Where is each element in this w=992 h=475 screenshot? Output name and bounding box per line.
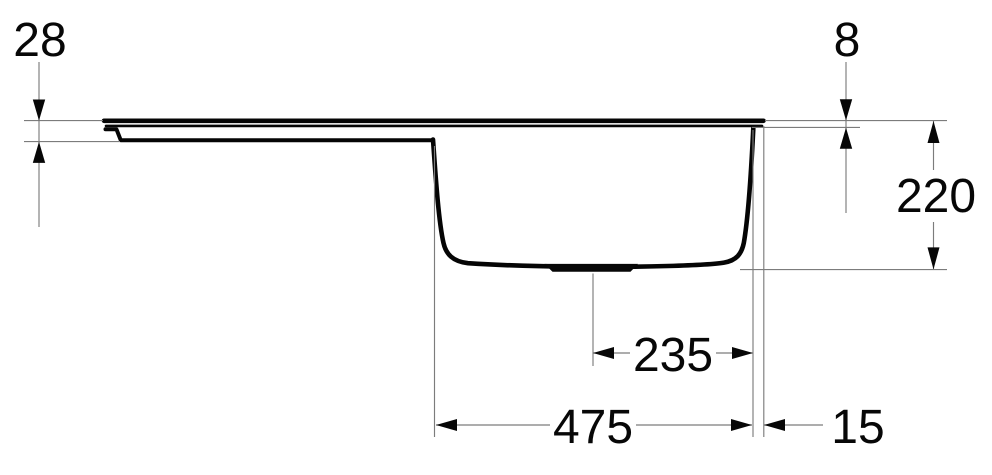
dimension-label: 15 (831, 401, 884, 454)
drawing-canvas: 28 8 220 235 (0, 0, 992, 475)
arrow-left-icon (593, 347, 614, 359)
dimension-bowl-depth: 220 (740, 121, 976, 270)
dimension-right-overhang: 15 (764, 126, 885, 454)
bowl-outline (433, 129, 753, 267)
arrow-down-icon (33, 100, 45, 121)
sink-dimension-drawing: 28 8 220 235 (0, 0, 992, 475)
dimension-label: 220 (896, 170, 976, 223)
arrow-up-icon (33, 142, 45, 163)
arrow-up-icon (928, 121, 940, 143)
dimension-label: 475 (553, 401, 633, 454)
arrow-right-icon (731, 419, 752, 431)
arrow-right-icon (732, 347, 753, 359)
arrow-left-icon (764, 419, 785, 431)
dimension-label: 8 (834, 14, 861, 67)
dimension-label: 235 (633, 329, 713, 382)
dimension-drain-to-wall: 235 (593, 274, 753, 383)
arrow-up-icon (840, 128, 852, 149)
dimension-bowl-width: 475 (435, 130, 754, 454)
drainboard-underside-line (106, 129, 434, 140)
drain-recess (545, 264, 639, 272)
arrow-down-icon (928, 247, 940, 269)
sink-profile (104, 121, 764, 272)
dimension-label: 28 (13, 14, 66, 67)
arrow-left-icon (436, 419, 457, 431)
arrow-down-icon (840, 99, 852, 120)
